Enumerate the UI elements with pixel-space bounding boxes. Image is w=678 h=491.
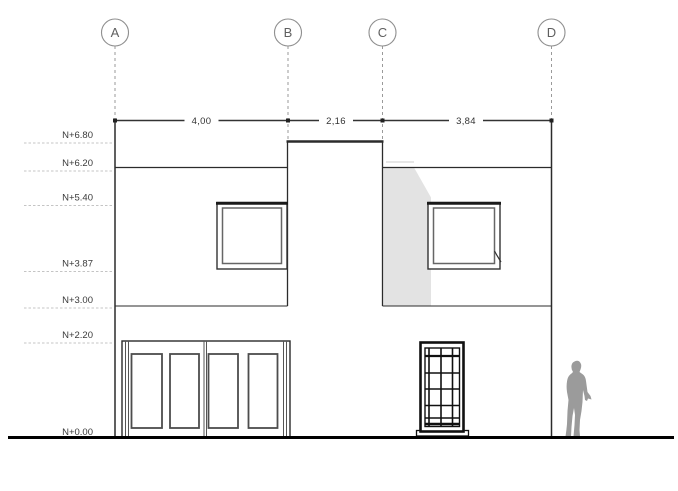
dimension-label-bc: 2,16 xyxy=(326,116,346,127)
grid-bubble-b: B xyxy=(275,19,302,46)
window-left xyxy=(216,203,288,270)
dimension-label-ab: 4,00 xyxy=(192,116,212,127)
dim-tick-d xyxy=(550,119,554,123)
level-label-300: N+3.00 xyxy=(62,295,93,306)
dim-tick-c xyxy=(381,119,385,123)
grid-bubble-d: D xyxy=(538,19,565,46)
grid-bubble-c-label: C xyxy=(378,25,387,40)
door-inner-frame xyxy=(425,348,460,427)
level-label-220: N+2.20 xyxy=(62,330,93,341)
grid-bubble-c: C xyxy=(369,19,396,46)
person-silhouette xyxy=(566,361,592,437)
level-markers: N+6.80 N+6.20 N+5.40 N+3.87 N+3.00 N+2.2… xyxy=(24,130,113,438)
door-panel-1 xyxy=(132,354,163,428)
glazed-door-assembly xyxy=(122,341,290,438)
elevation-drawing-canvas: A B C D xyxy=(0,0,678,491)
dim-tick-b xyxy=(286,119,290,123)
window-right xyxy=(427,203,501,270)
grid-bubble-d-label: D xyxy=(547,25,556,40)
door-panel-2 xyxy=(170,354,199,428)
level-label-680: N+6.80 xyxy=(62,130,93,141)
door-panel-4 xyxy=(249,354,278,428)
level-label-620: N+6.20 xyxy=(62,158,93,169)
grid-bubbles: A B C D xyxy=(102,19,566,46)
shaded-wall-area xyxy=(384,168,432,306)
entrance-door xyxy=(417,343,469,437)
dimension-label-cd: 3,84 xyxy=(456,116,476,127)
elevation-drawing: A B C D xyxy=(0,0,678,491)
door-panel-3 xyxy=(209,354,239,428)
grid-bubble-a: A xyxy=(102,19,129,46)
dimension-string: 4,00 2,16 3,84 xyxy=(113,115,554,128)
level-label-387: N+3.87 xyxy=(62,259,93,270)
grid-bubble-a-label: A xyxy=(111,25,120,40)
grid-bubble-b-label: B xyxy=(284,25,293,40)
dim-tick-a xyxy=(113,119,117,123)
level-label-540: N+5.40 xyxy=(62,193,93,204)
